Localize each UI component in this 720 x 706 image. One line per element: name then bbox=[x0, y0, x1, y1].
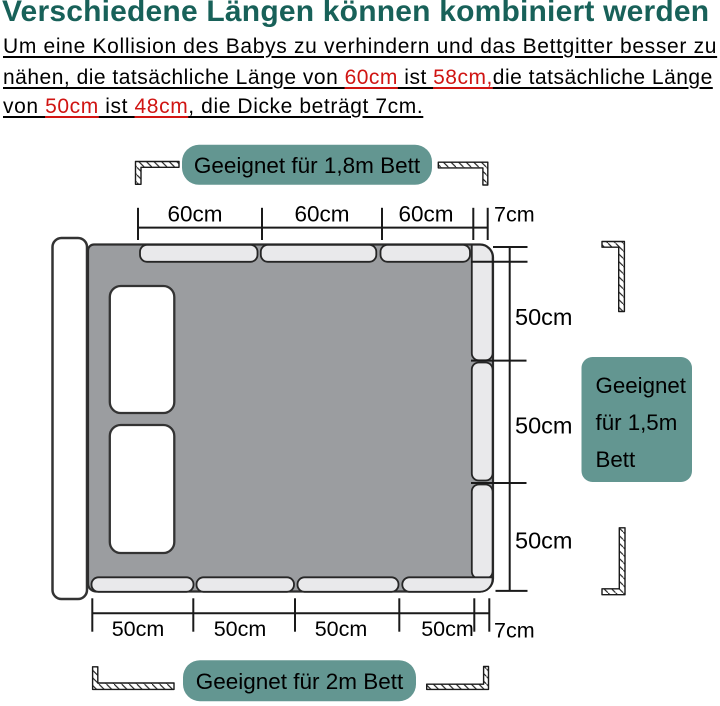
svg-text:7cm: 7cm bbox=[494, 203, 535, 227]
svg-text:7cm: 7cm bbox=[494, 618, 535, 642]
svg-text:60cm: 60cm bbox=[167, 202, 222, 227]
svg-text:50cm: 50cm bbox=[515, 413, 572, 439]
svg-text:Geeignet für 1,8m Bett: Geeignet für 1,8m Bett bbox=[194, 153, 421, 178]
svg-text:50cm: 50cm bbox=[214, 617, 267, 641]
svg-text:50cm: 50cm bbox=[515, 304, 572, 330]
svg-text:50cm: 50cm bbox=[421, 617, 474, 641]
svg-text:Bett: Bett bbox=[596, 447, 636, 472]
svg-text:Geeignet: Geeignet bbox=[596, 373, 687, 398]
svg-text:50cm: 50cm bbox=[112, 617, 165, 641]
svg-text:Geeignet für 2m Bett: Geeignet für 2m Bett bbox=[196, 669, 404, 694]
svg-text:50cm: 50cm bbox=[315, 617, 368, 641]
svg-text:60cm: 60cm bbox=[398, 202, 453, 227]
svg-text:60cm: 60cm bbox=[294, 202, 349, 227]
svg-text:50cm: 50cm bbox=[515, 527, 572, 553]
svg-text:für 1,5m: für 1,5m bbox=[596, 410, 678, 435]
